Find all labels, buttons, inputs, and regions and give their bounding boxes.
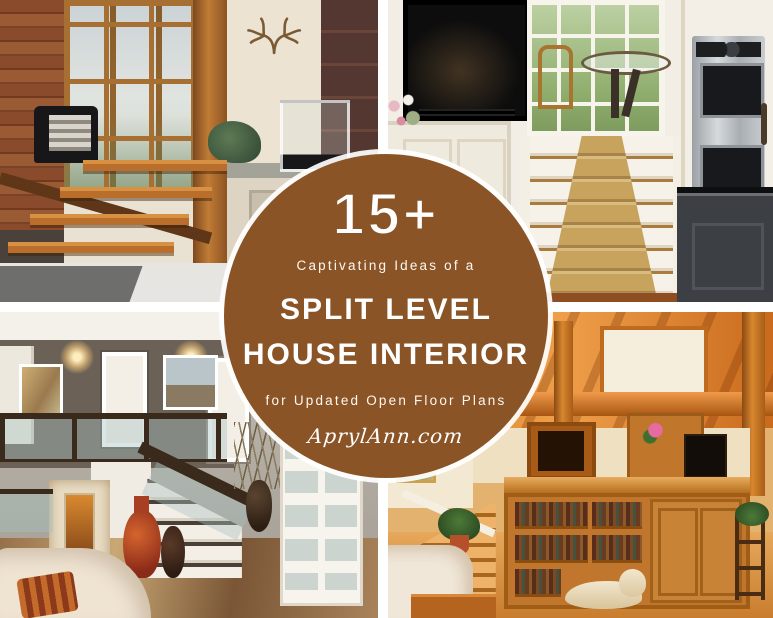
leafy-plant bbox=[208, 121, 261, 163]
wall-sconce-glow bbox=[60, 340, 94, 374]
white-wall-patch bbox=[604, 330, 704, 397]
wood-chair bbox=[538, 45, 573, 108]
chair-blanket bbox=[49, 115, 91, 151]
railing-posts bbox=[0, 413, 227, 462]
book-row bbox=[515, 502, 588, 526]
flower-bouquet bbox=[388, 85, 427, 145]
pin-graphic: 15+ Captivating Ideas of a SPLIT LEVEL H… bbox=[0, 0, 773, 618]
striped-pillow bbox=[16, 571, 78, 618]
small-tv bbox=[684, 434, 727, 478]
dog-head bbox=[619, 569, 646, 597]
book-row bbox=[592, 535, 642, 559]
floating-stair-tread bbox=[30, 214, 189, 225]
framed-art bbox=[163, 355, 218, 410]
floating-stair-tread bbox=[83, 160, 227, 171]
idea-count: 15+ bbox=[332, 186, 439, 244]
antler-decor-icon bbox=[242, 15, 306, 57]
website-name: AprylAnn.com bbox=[307, 424, 465, 448]
fireplace-vents bbox=[419, 109, 515, 118]
floating-stair-tread bbox=[60, 187, 211, 198]
cabinet-opening bbox=[538, 431, 584, 471]
iron-table-base bbox=[611, 69, 619, 117]
badge-title-line2: HOUSE INTERIOR bbox=[243, 332, 529, 377]
title-badge: 15+ Captivating Ideas of a SPLIT LEVEL H… bbox=[224, 154, 548, 478]
gray-doormat bbox=[0, 266, 143, 302]
pink-flowers bbox=[642, 419, 669, 443]
book-row bbox=[515, 535, 588, 559]
dark-floor-vase bbox=[161, 526, 186, 578]
oven-window bbox=[700, 63, 764, 117]
coffee-table bbox=[411, 594, 496, 618]
cabinet-door-panel bbox=[658, 508, 699, 597]
badge-title-line1: SPLIT LEVEL bbox=[280, 287, 492, 332]
badge-eyebrow-text: Captivating Ideas of a bbox=[297, 258, 476, 273]
bookcase-counter bbox=[504, 477, 750, 492]
branch-vase bbox=[246, 480, 272, 532]
lower-railing bbox=[0, 489, 53, 532]
cabinet-handle bbox=[761, 103, 767, 145]
badge-tagline-text: for Updated Open Floor Plans bbox=[266, 393, 507, 408]
plant-on-stand bbox=[735, 502, 770, 526]
island-door-panel bbox=[692, 223, 763, 289]
floating-stair-tread bbox=[8, 242, 174, 253]
book-row bbox=[592, 502, 642, 526]
plant-stand bbox=[735, 514, 766, 600]
framed-art bbox=[19, 364, 63, 416]
book-row bbox=[515, 569, 561, 593]
oven-knobs bbox=[696, 42, 761, 57]
niche-artwork bbox=[64, 493, 94, 555]
